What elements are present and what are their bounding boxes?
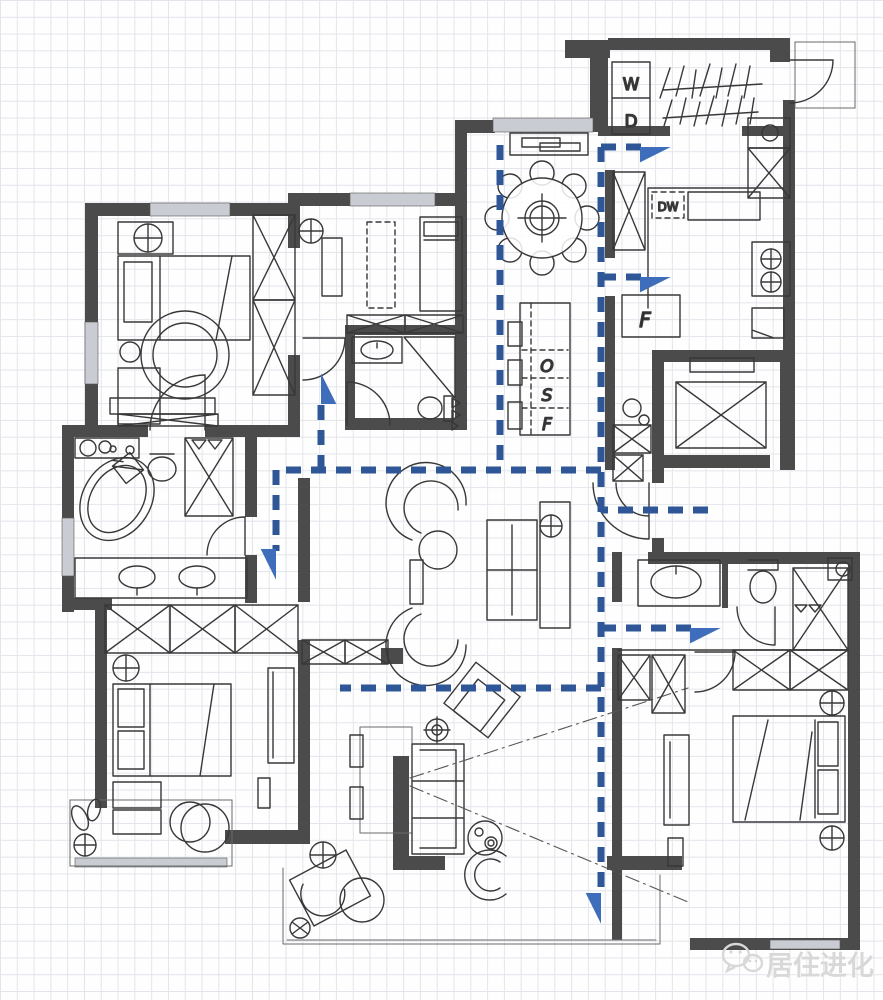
wardrobe-xbox [170, 605, 235, 653]
corner-cabinet [752, 308, 784, 338]
stool [120, 342, 140, 362]
closet-xbox [793, 568, 848, 650]
wardrobe-xbox [235, 605, 298, 653]
side-shelf [410, 560, 423, 604]
cabinet-xbox [613, 425, 651, 453]
hanging-clothes-marks [660, 64, 762, 126]
study-table-lines [487, 525, 537, 615]
bed [733, 716, 845, 822]
wardrobe-xbox [253, 300, 295, 395]
washer-label: W [623, 75, 640, 95]
bench [110, 398, 215, 414]
window-dining [493, 118, 593, 132]
bed-fold [150, 684, 214, 776]
tall-mirror-cabinet [664, 735, 689, 825]
sink-taps [137, 588, 197, 595]
lamp-cross [292, 922, 308, 934]
bay-pouf [181, 804, 229, 852]
bed-fold [160, 256, 232, 340]
round-chair-outer [141, 311, 229, 399]
floor-plan-drawing: O S F W D DW F [0, 0, 883, 1000]
cabinet-xbox [613, 455, 643, 481]
watermark-text: 居住进化 [766, 950, 874, 982]
pillow [818, 722, 838, 766]
wardrobe-xbox [790, 650, 848, 690]
fan-chair-inner [404, 614, 458, 666]
vanity-counter [638, 560, 720, 606]
floor-lamp-cross [424, 717, 450, 743]
round-chair-inner [153, 323, 217, 387]
elevator-shaft-xbox [676, 382, 766, 448]
desk [268, 668, 294, 763]
shower [404, 337, 455, 398]
toilet-icon [148, 457, 176, 481]
fan-chair [386, 608, 466, 685]
sink-icon [179, 566, 215, 588]
sofa-cushions [412, 750, 464, 848]
dishwasher-label: DW [657, 200, 678, 214]
bed-fold [745, 720, 815, 820]
wardrobe-xbox [733, 650, 790, 690]
grid-paper-canvas: O S F W D DW F [0, 0, 883, 1000]
pillow [118, 731, 144, 769]
bench [113, 810, 161, 834]
c-chair-inner [475, 859, 500, 891]
pouf [170, 802, 210, 842]
rocking-chair [290, 850, 371, 926]
dryer-label: D [624, 112, 637, 132]
hanger-marks [192, 440, 222, 449]
door-bell-icon [639, 415, 649, 425]
door-laundry-balcony [790, 60, 833, 103]
fridge-label: F [639, 308, 651, 332]
cabinet-letter-f: F [542, 415, 552, 435]
cabinet-letter-s: S [542, 386, 553, 406]
c-chair [465, 850, 506, 900]
window-master-bath [62, 518, 74, 576]
side-table [350, 787, 363, 819]
pillow [118, 689, 144, 727]
cabinet-xbox [652, 655, 685, 713]
bed-dashed-half [367, 222, 395, 308]
laundry-balcony-outline [795, 42, 855, 108]
tall-cabinet: O S F [508, 303, 570, 435]
door-bedroom-tm [303, 338, 345, 380]
round-table [419, 531, 457, 569]
burner-cross [761, 249, 781, 292]
ensuite-suite [618, 558, 852, 866]
double-vanity [75, 558, 247, 598]
door-bell-icon [623, 399, 641, 417]
bookcase [540, 502, 570, 628]
kitchen: DW F [613, 172, 790, 338]
sink-icon [119, 566, 155, 588]
door-ensuite-toilet [737, 607, 775, 645]
door-master-hall [207, 517, 245, 555]
dresser [118, 368, 160, 424]
bench [113, 782, 161, 808]
window-ensuite-south [770, 940, 840, 949]
shelf [258, 778, 270, 808]
pillow [818, 770, 838, 814]
cabinet-letter-o: O [540, 357, 553, 377]
pillow [124, 262, 152, 322]
fridge [622, 295, 680, 337]
bed [113, 684, 231, 776]
cabinet-xbox [618, 655, 650, 700]
hanger-marks [795, 605, 821, 612]
fan-chair-inner [404, 481, 458, 533]
window-bedroom-tl [150, 203, 230, 216]
wardrobe-xbox [253, 215, 295, 300]
closet-xbox [185, 438, 233, 516]
walls [62, 38, 860, 950]
toilet-icon [418, 397, 442, 419]
cabinet-xbox [613, 172, 645, 250]
bedroom-top-left [110, 215, 295, 426]
fan-chair [386, 463, 466, 540]
wardrobe-xbox [105, 605, 170, 653]
side-table [350, 735, 363, 767]
window-bedroom-tl-left [85, 322, 98, 384]
study-nook [386, 463, 570, 686]
master-bathroom [65, 438, 247, 598]
window-bedroom-tm [350, 193, 435, 206]
pillow [424, 222, 458, 236]
desk [322, 238, 342, 296]
door-ensuite-bedroom [695, 652, 735, 692]
bench-xbox [118, 414, 218, 426]
toilet-icon [750, 571, 776, 603]
